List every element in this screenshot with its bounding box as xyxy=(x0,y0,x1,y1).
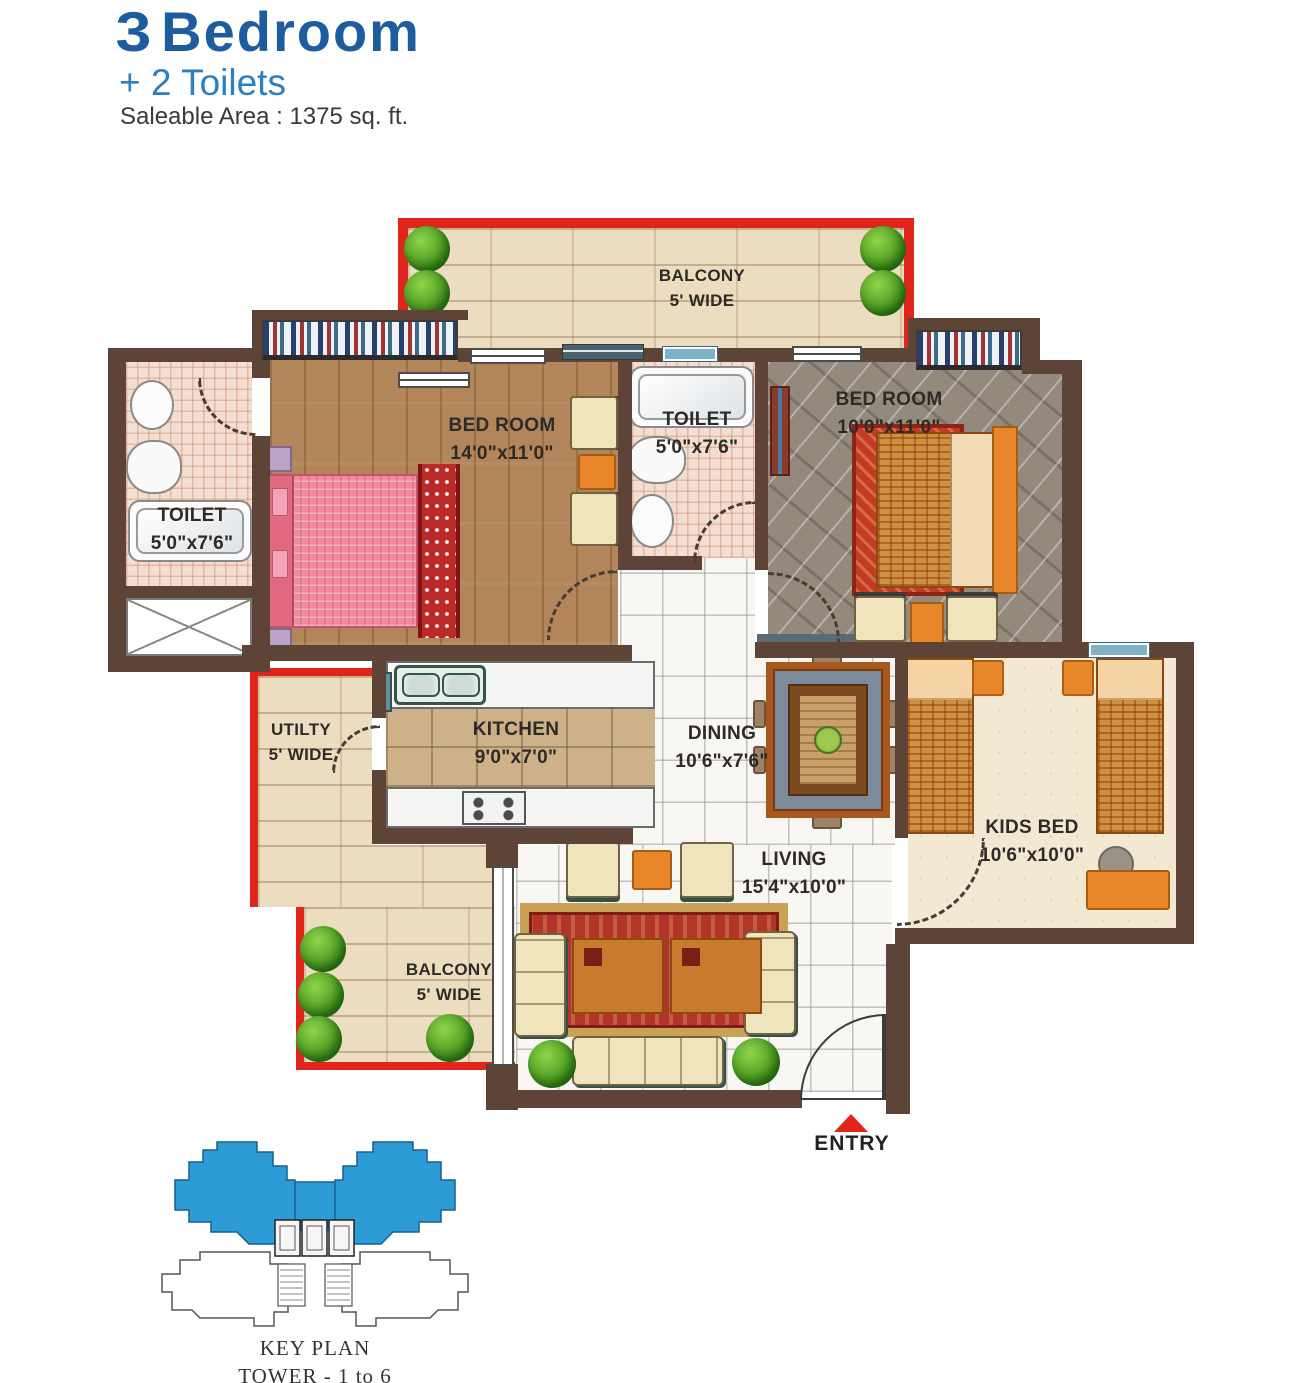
bed-sheet xyxy=(1098,660,1162,700)
shaft xyxy=(126,598,252,656)
room-label-balcony-bottom: BALCONY 5' WIDE xyxy=(406,958,492,1007)
gas-stove xyxy=(462,791,526,825)
entry-arrow-icon xyxy=(834,1114,868,1132)
double-bed xyxy=(266,474,418,628)
entry-door-leaf xyxy=(882,1014,886,1100)
wall xyxy=(108,348,268,362)
side-table xyxy=(578,454,616,490)
cushion xyxy=(682,948,700,966)
room-label-living: LIVING 15'4"x10'0" xyxy=(742,846,846,901)
side-table xyxy=(910,602,944,644)
wall xyxy=(108,348,126,670)
plant-icon xyxy=(404,226,450,272)
room-label-toilet-left: TOILET 5'0"x7'6" xyxy=(151,502,234,557)
center-table xyxy=(632,850,672,890)
window xyxy=(662,346,718,362)
plant-icon xyxy=(860,226,906,272)
wall xyxy=(895,658,908,838)
floor-mat xyxy=(670,938,762,1014)
plant-icon xyxy=(732,1038,780,1086)
page-subtitle: + 2 Toilets xyxy=(119,64,286,101)
sofa xyxy=(514,933,566,1037)
room-label-dining: DINING 10'6"x7'6" xyxy=(675,720,768,775)
room-name: BALCONY xyxy=(406,958,492,983)
floor-mat xyxy=(572,938,664,1014)
room-label-utility: UTILTY 5' WIDE xyxy=(269,718,334,767)
room-name: TOILET xyxy=(656,406,739,434)
room-dims: 5' WIDE xyxy=(659,289,745,314)
wall xyxy=(252,436,270,661)
washbasin xyxy=(130,380,174,430)
wall xyxy=(886,944,910,1114)
wall xyxy=(618,348,632,570)
study-desk xyxy=(1086,870,1170,910)
room-name: KIDS BED xyxy=(980,814,1084,842)
armchair xyxy=(854,596,906,642)
armchair xyxy=(566,842,620,898)
room-name: KITCHEN xyxy=(473,716,560,744)
plant-icon xyxy=(300,926,346,972)
bed-sheet xyxy=(908,660,972,700)
room-label-kids-bedroom: KIDS BED 10'6"x10'0" xyxy=(980,814,1084,869)
wall xyxy=(502,1090,802,1108)
sofa xyxy=(572,1036,724,1086)
wall xyxy=(372,770,386,828)
room-name: BED ROOM xyxy=(449,412,556,440)
bed-pillow xyxy=(1062,660,1094,696)
key-plan-subtitle: TOWER - 1 to 6 & 8 xyxy=(228,1362,403,1383)
key-plan: KEY PLAN TOWER - 1 to 6 & 8 xyxy=(140,1122,490,1382)
bedside-carpet xyxy=(418,464,460,638)
corridor-floor xyxy=(620,558,755,658)
room-name: TOILET xyxy=(151,502,234,530)
bed-pillows xyxy=(950,434,992,586)
plant-icon xyxy=(860,270,906,316)
washbasin xyxy=(630,494,674,548)
wall xyxy=(1176,642,1194,944)
kitchen-sink xyxy=(394,665,486,705)
plant-icon xyxy=(528,1040,576,1088)
room-name: DINING xyxy=(675,720,768,748)
cushion xyxy=(584,948,602,966)
armchair xyxy=(570,396,618,450)
wall xyxy=(622,556,702,570)
armchair xyxy=(946,596,998,642)
plant-icon xyxy=(296,1016,342,1062)
floor-plan-page: 3Bedroom + 2 Toilets Saleable Area : 137… xyxy=(0,0,1301,1383)
bed-headboard xyxy=(992,426,1018,594)
title-number: 3 xyxy=(116,4,154,60)
room-dims: 10'0"x11'0" xyxy=(836,414,943,442)
room-dims: 5'0"x7'6" xyxy=(151,530,234,558)
toilet-wc xyxy=(126,440,182,494)
room-label-kitchen: KITCHEN 9'0"x7'0" xyxy=(473,716,560,771)
title-word: Bedroom xyxy=(161,0,421,63)
utility-passage-floor xyxy=(250,845,494,907)
bed-pillow xyxy=(272,488,288,516)
wall xyxy=(486,828,518,868)
room-name: BED ROOM xyxy=(836,386,943,414)
dresser xyxy=(398,372,470,388)
wall xyxy=(242,645,632,661)
bed-pillow xyxy=(272,550,288,578)
centerpiece xyxy=(814,726,842,754)
armchair xyxy=(680,842,734,898)
wall xyxy=(908,318,1040,330)
key-plan-title: KEY PLAN xyxy=(228,1334,403,1362)
entry-label: ENTRY xyxy=(814,1132,889,1156)
room-dims: 14'0"x11'0" xyxy=(449,440,556,468)
room-dims: 5' WIDE xyxy=(269,743,334,768)
room-dims: 5'0"x7'6" xyxy=(656,434,739,462)
room-dims: 15'4"x10'0" xyxy=(742,874,846,902)
wall xyxy=(755,348,768,570)
room-dims: 9'0"x7'0" xyxy=(473,744,560,772)
wardrobe xyxy=(262,320,458,360)
room-dims: 10'6"x7'6" xyxy=(675,748,768,776)
key-plan-caption: KEY PLAN TOWER - 1 to 6 & 8 xyxy=(228,1334,403,1383)
wall xyxy=(372,661,386,718)
key-plan-drawing xyxy=(140,1122,490,1334)
saleable-area: Saleable Area : 1375 sq. ft. xyxy=(120,105,408,129)
sliding-door xyxy=(562,344,644,360)
room-label-bedroom-second: BED ROOM 10'0"x11'0" xyxy=(836,386,943,441)
window xyxy=(1088,642,1150,658)
room-name: BALCONY xyxy=(659,264,745,289)
window xyxy=(470,348,546,364)
wall xyxy=(252,310,468,320)
balcony-window xyxy=(492,866,514,1066)
armchair xyxy=(570,492,618,546)
room-dims: 5' WIDE xyxy=(406,983,492,1008)
wall xyxy=(895,928,1194,944)
wall-cabinet xyxy=(770,386,790,476)
plant-icon xyxy=(426,1014,474,1062)
room-label-balcony-top: BALCONY 5' WIDE xyxy=(659,264,745,313)
room-dims: 10'6"x10'0" xyxy=(980,842,1084,870)
wall xyxy=(126,586,252,598)
window xyxy=(792,346,862,362)
page-title: 3Bedroom xyxy=(118,4,421,60)
wall xyxy=(908,318,916,362)
room-label-toilet-mid: TOILET 5'0"x7'6" xyxy=(656,406,739,461)
bed-pillow xyxy=(972,660,1004,696)
wardrobe xyxy=(916,330,1022,370)
wall xyxy=(1062,360,1082,648)
room-label-bedroom-master: BED ROOM 14'0"x11'0" xyxy=(449,412,556,467)
room-name: LIVING xyxy=(742,846,846,874)
plant-icon xyxy=(298,972,344,1018)
room-name: UTILTY xyxy=(269,718,334,743)
